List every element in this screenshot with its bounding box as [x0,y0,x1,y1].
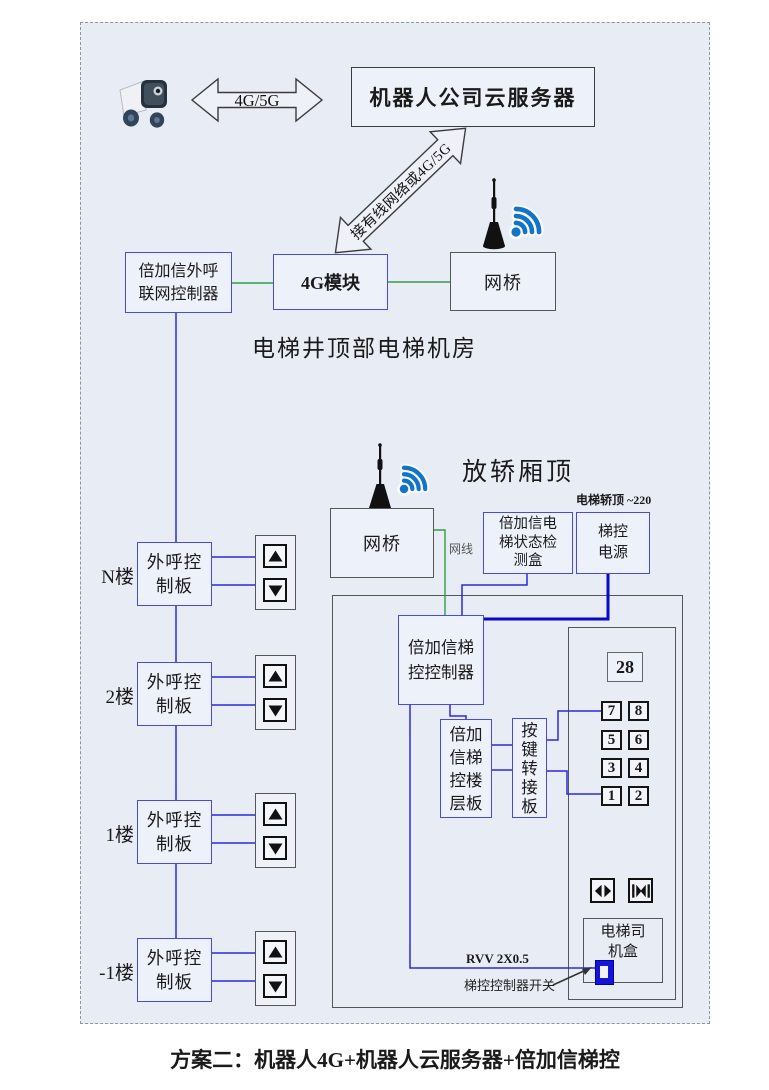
floor-label-2: 2楼 [92,682,134,709]
outcall-board-minus1: 外呼控 制板 [137,938,212,1002]
machine-room-caption: 电梯井顶部电梯机房 [252,329,477,363]
rvv-cable-label: RVV 2X0.5 [466,951,529,967]
bridge-box-machine-room: 网桥 [450,252,556,311]
floor-board-box: 倍加 信梯 控楼 层板 [440,719,492,818]
hall-button-panel-2 [255,655,296,730]
cloud-server-label: 机器人公司云服务器 [370,82,577,112]
up-button [263,544,287,568]
car-top-power-note: 电梯轿顶 ~220 [576,491,651,508]
down-button [263,974,287,998]
up-button [263,940,287,964]
floor-label-minus1: -1楼 [92,958,134,985]
down-arrow-icon [266,977,285,996]
outcall-network-controller-box: 倍加信外呼 联网控制器 [125,252,232,313]
floor-button-3: 3 [601,758,622,778]
down-button [263,698,287,722]
up-arrow-icon [266,805,285,824]
up-arrow-icon [266,547,285,566]
controller-switch [595,960,614,985]
down-arrow-icon [266,839,285,858]
floor-label-1: 1楼 [92,820,134,847]
diagram-page: 4G/5G 接有线网络或4G/5G [0,0,769,1090]
up-arrow-icon [266,943,285,962]
door-close-icon [631,881,651,901]
up-button [263,664,287,688]
floor-display: 28 [607,652,643,682]
switch-label: 梯控控制器开关 [464,975,555,994]
outcall-board-1: 外呼控 制板 [137,800,212,864]
control-power-box: 梯控 电源 [576,512,650,574]
floor-button-4: 4 [628,758,649,778]
car-top-caption: 放轿厢顶 [462,452,574,488]
floor-button-1: 1 [601,786,622,806]
up-button [263,802,287,826]
outcall-board-n: 外呼控 制板 [137,542,212,606]
key-adapter-box: 按 键 转 接 板 [512,718,547,818]
scheme-caption: 方案二：机器人4G+机器人云服务器+倍加信梯控 [80,1044,710,1074]
module-4g-box: 4G模块 [273,254,388,310]
cloud-server-box: 机器人公司云服务器 [351,67,595,127]
hall-button-panel-minus1 [255,931,296,1006]
floor-label-n: N楼 [92,562,134,589]
elevator-status-box: 倍加信电 梯状态检 测盒 [483,512,573,574]
up-arrow-icon [266,667,285,686]
down-button [263,578,287,602]
outcall-board-2: 外呼控 制板 [137,662,212,726]
floor-button-7: 7 [601,701,622,721]
floor-button-6: 6 [628,730,649,750]
elevator-controller-box: 倍加信梯 控控制器 [398,615,484,705]
door-open-button [590,878,615,903]
hall-button-panel-1 [255,793,296,868]
down-arrow-icon [266,701,285,720]
down-arrow-icon [266,581,285,600]
floor-button-5: 5 [601,730,622,750]
down-button [263,836,287,860]
bridge-box-car-top: 网桥 [330,508,434,578]
floor-button-8: 8 [628,701,649,721]
door-open-icon [593,881,613,901]
door-close-button [628,878,653,903]
floor-button-2: 2 [628,786,649,806]
network-cable-label: 网线 [449,540,473,557]
hall-button-panel-n [255,535,296,610]
